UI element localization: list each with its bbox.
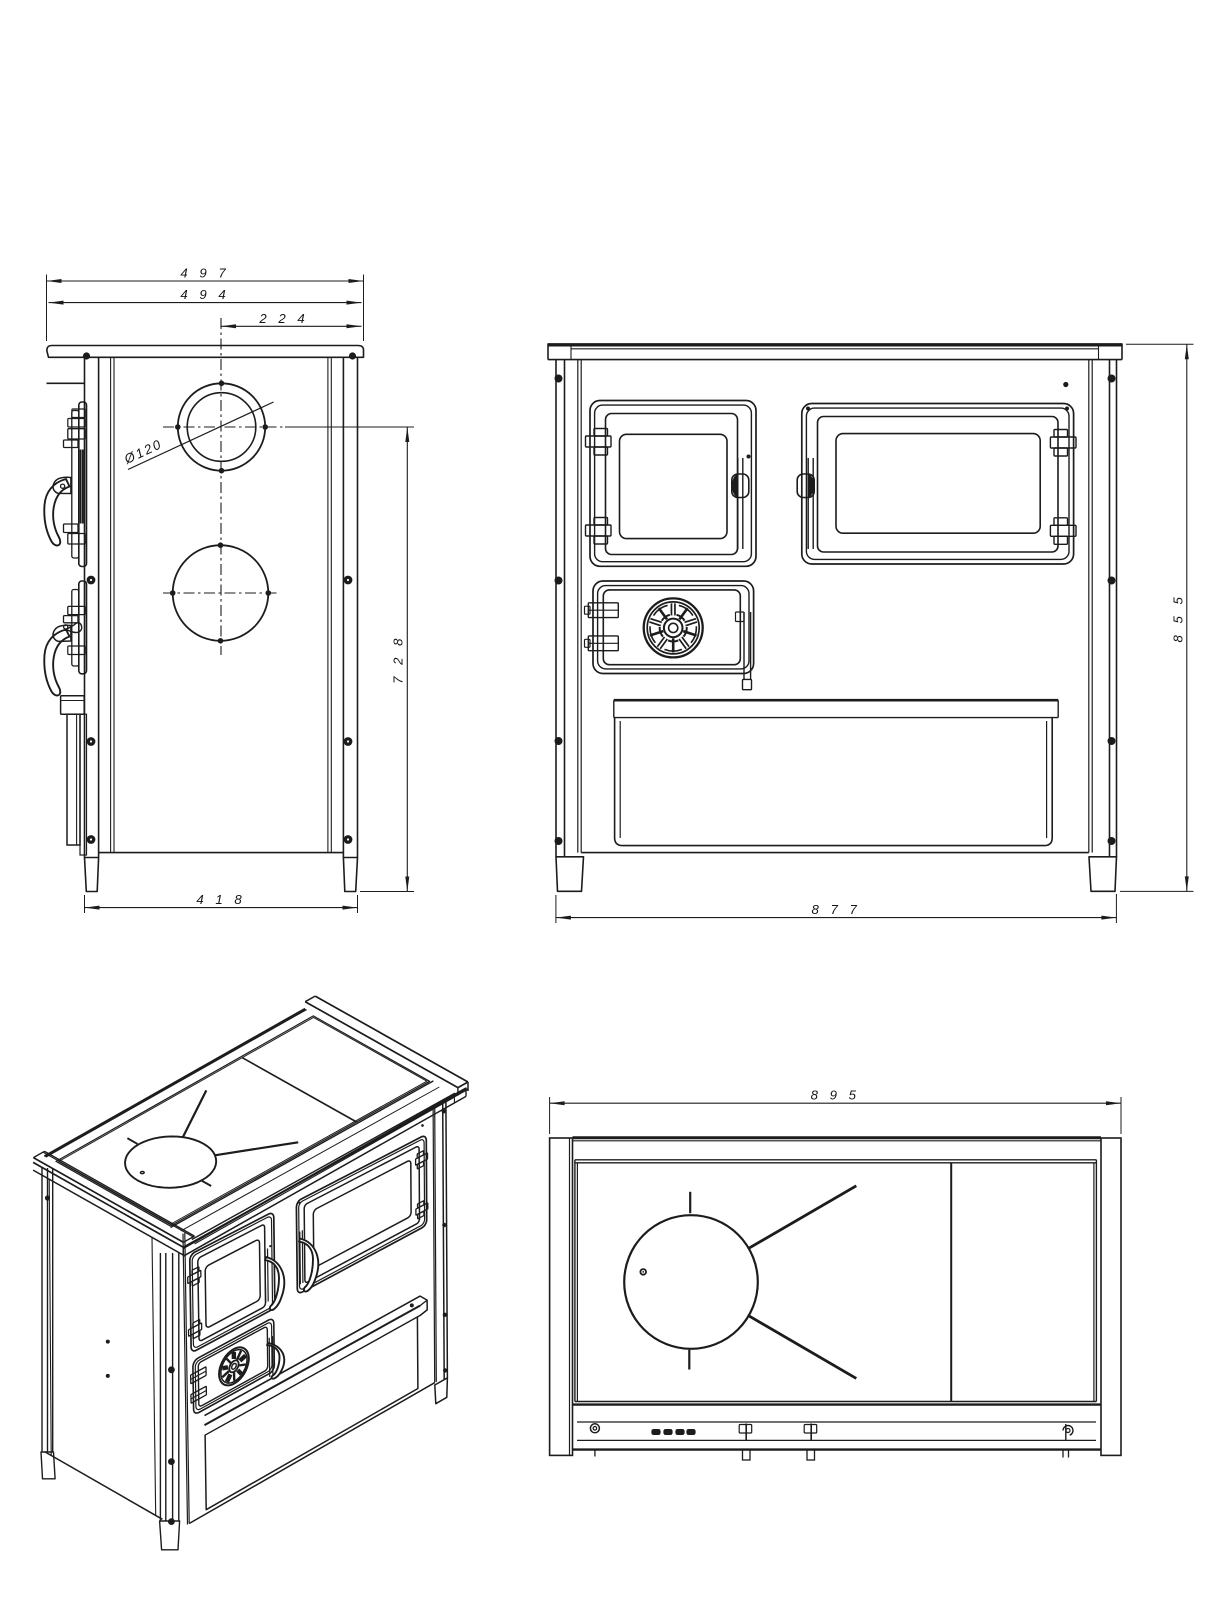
svg-text:4 1 8: 4 1 8 (196, 892, 245, 907)
svg-text:4 9 7: 4 9 7 (180, 266, 229, 281)
svg-text:8 5 5: 8 5 5 (1170, 593, 1185, 642)
svg-text:8 9 5: 8 9 5 (811, 1088, 860, 1103)
svg-text:2 2 4: 2 2 4 (258, 311, 308, 326)
svg-text:4 9 4: 4 9 4 (180, 287, 229, 302)
svg-text:8 7 7: 8 7 7 (812, 902, 861, 917)
svg-text:7 2 8: 7 2 8 (391, 635, 406, 684)
